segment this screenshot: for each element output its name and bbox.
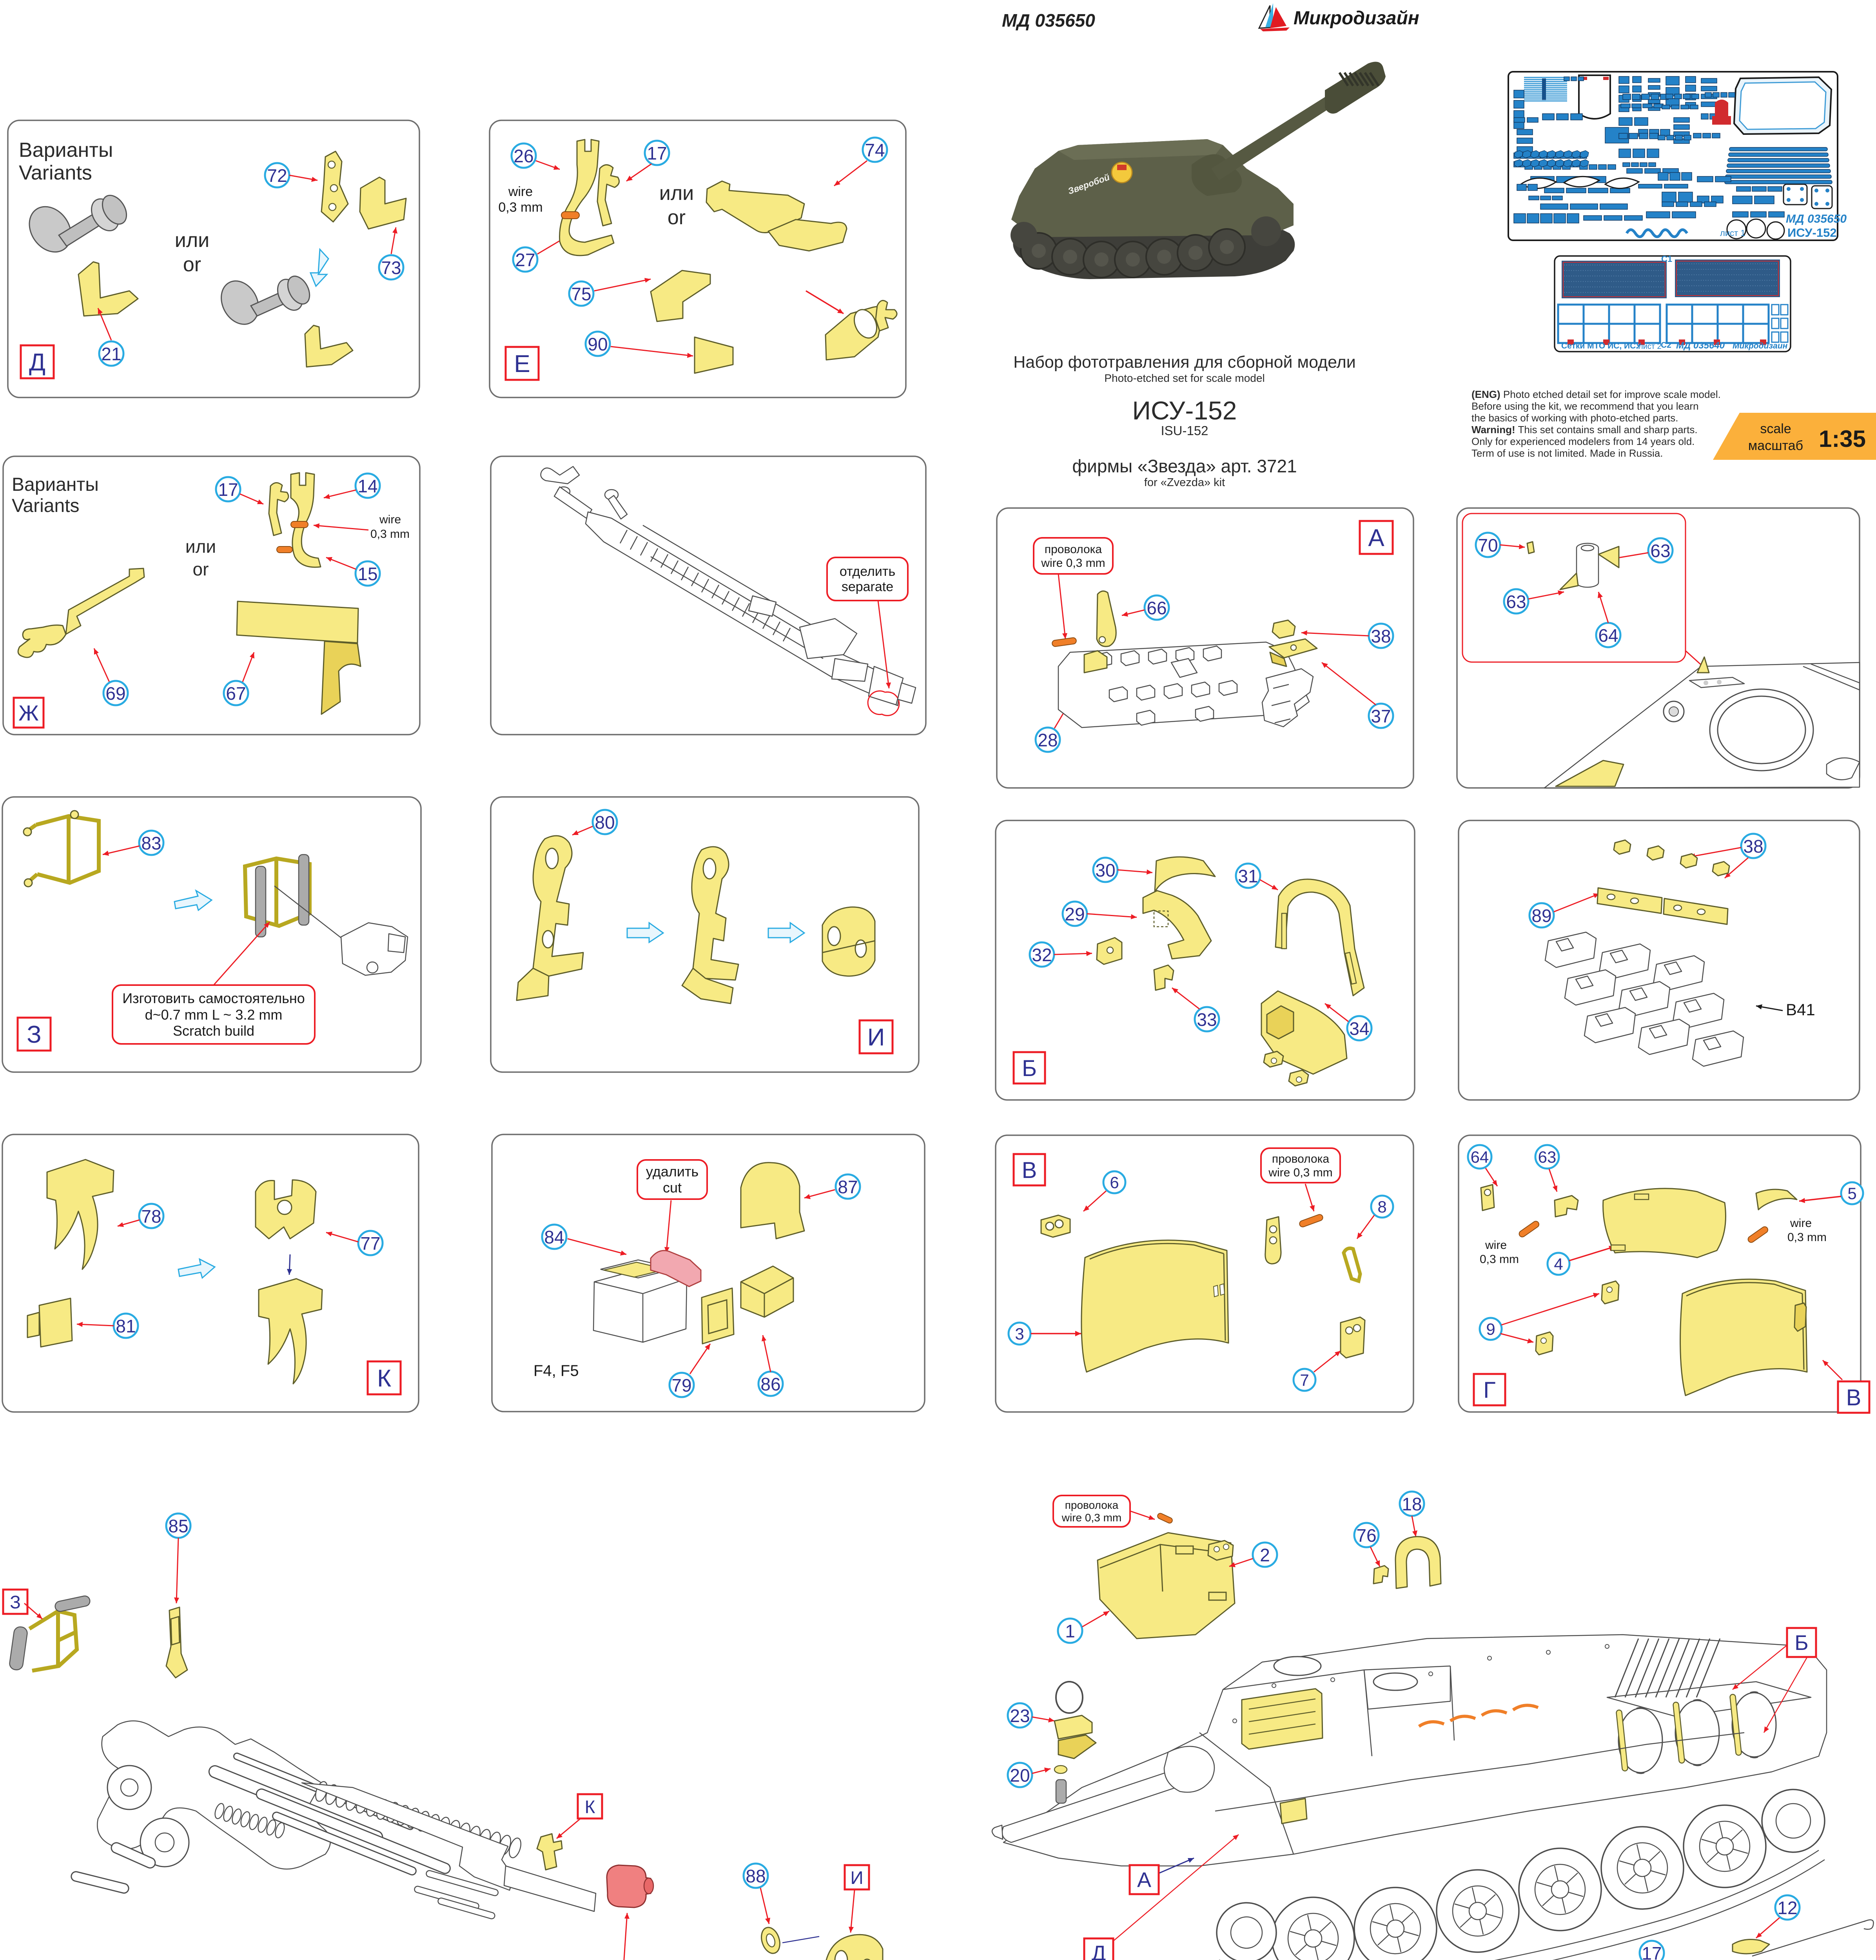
svg-text:64: 64	[1598, 625, 1618, 646]
svg-text:for «Zvezda» kit: for «Zvezda» kit	[1144, 476, 1225, 489]
svg-text:the basics of working with pho: the basics of working with photo-etched …	[1471, 412, 1678, 424]
svg-text:73: 73	[381, 258, 401, 278]
svg-text:С2: С2	[1661, 341, 1671, 350]
svg-text:63: 63	[1650, 541, 1670, 561]
svg-text:23: 23	[1010, 1706, 1030, 1726]
svg-text:72: 72	[267, 165, 287, 186]
svg-text:wire: wire	[508, 184, 533, 199]
svg-text:0,3 mm: 0,3 mm	[1480, 1253, 1519, 1266]
svg-text:Г: Г	[1483, 1377, 1495, 1403]
svg-text:или: или	[185, 536, 216, 557]
svg-text:масштаб: масштаб	[1748, 438, 1803, 453]
svg-text:F4, F5: F4, F5	[533, 1362, 579, 1379]
svg-text:cut: cut	[663, 1180, 682, 1196]
svg-text:64: 64	[1471, 1148, 1489, 1166]
svg-text:17: 17	[1642, 1943, 1662, 1960]
svg-text:1:35: 1:35	[1819, 426, 1866, 452]
svg-text:МД 035650: МД 035650	[1002, 10, 1095, 31]
svg-text:wire 0,3 mm: wire 0,3 mm	[1041, 557, 1105, 570]
svg-text:0,3 mm: 0,3 mm	[1787, 1231, 1827, 1244]
svg-text:(ENG) Photo etched detail set: (ENG) Photo etched detail set for improv…	[1471, 388, 1721, 400]
svg-text:лист 1: лист 1	[1720, 228, 1745, 238]
svg-text:Д: Д	[1092, 1942, 1106, 1960]
svg-text:7: 7	[1300, 1371, 1309, 1389]
svg-text:38: 38	[1743, 836, 1763, 857]
svg-text:К: К	[377, 1365, 391, 1392]
svg-text:фирмы «Звезда» арт. 3721: фирмы «Звезда» арт. 3721	[1072, 456, 1297, 476]
svg-text:Б: Б	[1022, 1056, 1037, 1081]
svg-text:or: or	[193, 559, 209, 579]
svg-text:wire: wire	[1485, 1239, 1507, 1252]
svg-text:ИСУ-152: ИСУ-152	[1787, 226, 1837, 240]
svg-text:3: 3	[1015, 1325, 1024, 1343]
svg-text:18: 18	[1402, 1494, 1422, 1514]
svg-text:А: А	[1137, 1868, 1151, 1892]
svg-text:Сетки МТО ИС, ИСУ: Сетки МТО ИС, ИСУ	[1561, 341, 1641, 350]
svg-text:78: 78	[141, 1206, 161, 1227]
svg-text:76: 76	[1356, 1525, 1376, 1546]
svg-text:ISU-152: ISU-152	[1161, 423, 1208, 438]
svg-text:30: 30	[1095, 860, 1115, 880]
svg-text:0,3 mm: 0,3 mm	[498, 200, 542, 215]
svg-text:4: 4	[1554, 1255, 1563, 1273]
svg-text:2: 2	[1260, 1545, 1270, 1565]
svg-text:Ж: Ж	[18, 701, 39, 725]
svg-text:38: 38	[1371, 626, 1391, 646]
svg-text:Микродизайн: Микродизайн	[1294, 8, 1419, 29]
svg-text:или: или	[175, 229, 209, 252]
svg-text:отделить: отделить	[840, 564, 895, 579]
svg-text:14: 14	[357, 476, 377, 496]
svg-text:80: 80	[595, 812, 615, 833]
svg-text:B41: B41	[1786, 1000, 1815, 1019]
svg-text:Варианты: Варианты	[12, 474, 99, 495]
svg-text:d~0.7 mm L ~ 3.2 mm: d~0.7 mm L ~ 3.2 mm	[145, 1007, 283, 1023]
svg-text:К: К	[585, 1797, 595, 1817]
svg-text:63: 63	[1506, 592, 1526, 612]
svg-text:separate: separate	[842, 579, 893, 594]
svg-text:Б: Б	[1794, 1631, 1808, 1655]
svg-text:Варианты: Варианты	[19, 139, 113, 162]
svg-text:wire: wire	[379, 513, 401, 526]
svg-text:wire 0,3 mm: wire 0,3 mm	[1061, 1512, 1121, 1524]
svg-text:87: 87	[838, 1177, 858, 1197]
svg-text:МД 035640: МД 035640	[1676, 340, 1725, 351]
svg-text:86: 86	[760, 1374, 780, 1394]
svg-text:И: И	[850, 1867, 863, 1888]
svg-text:26: 26	[513, 146, 533, 166]
svg-text:удалить: удалить	[646, 1163, 699, 1180]
svg-text:C1: C1	[1661, 254, 1672, 264]
svg-text:МД 035650: МД 035650	[1786, 212, 1847, 225]
svg-text:проволока: проволока	[1272, 1152, 1330, 1165]
svg-text:или: или	[659, 182, 694, 205]
svg-text:12: 12	[1777, 1898, 1797, 1918]
svg-text:З: З	[10, 1592, 21, 1612]
svg-text:75: 75	[571, 284, 591, 304]
svg-text:Набор фототравления для сборно: Набор фототравления для сборной модели	[1013, 353, 1356, 372]
svg-text:32: 32	[1032, 945, 1052, 965]
svg-text:85: 85	[168, 1516, 188, 1536]
svg-text:31: 31	[1238, 866, 1258, 886]
svg-text:79: 79	[671, 1375, 691, 1396]
svg-text:77: 77	[360, 1233, 380, 1254]
svg-text:20: 20	[1010, 1765, 1030, 1786]
svg-text:И: И	[867, 1024, 885, 1051]
svg-text:Изготовить самостоятельно: Изготовить самостоятельно	[122, 990, 305, 1006]
svg-text:81: 81	[116, 1316, 136, 1336]
svg-text:З: З	[27, 1021, 41, 1048]
svg-text:89: 89	[1531, 906, 1551, 926]
svg-text:or: or	[668, 206, 686, 229]
svg-text:33: 33	[1197, 1009, 1217, 1030]
svg-text:Scratch build: Scratch build	[173, 1023, 254, 1039]
svg-text:90: 90	[588, 334, 608, 354]
svg-text:В: В	[1022, 1158, 1037, 1183]
svg-text:74: 74	[865, 140, 885, 160]
svg-text:88: 88	[746, 1866, 766, 1886]
svg-text:проволока: проволока	[1045, 543, 1102, 556]
svg-text:Warning! This set contains sma: Warning! This set contains small and sha…	[1471, 424, 1698, 436]
svg-text:6: 6	[1110, 1173, 1119, 1192]
svg-text:ИСУ-152: ИСУ-152	[1132, 396, 1237, 425]
svg-text:Before using the kit, we recom: Before using the kit, we recommend that …	[1471, 400, 1699, 412]
svg-text:лист 2: лист 2	[1638, 342, 1662, 351]
svg-text:0,3 mm: 0,3 mm	[370, 528, 410, 541]
svg-text:Д: Д	[29, 349, 45, 376]
svg-text:63: 63	[1538, 1148, 1557, 1166]
svg-text:67: 67	[226, 683, 246, 704]
svg-text:Микродизаин: Микродизаин	[1733, 341, 1788, 350]
svg-text:Only for experienced modelers: Only for experienced modelers from 14 ye…	[1471, 436, 1695, 447]
svg-text:А: А	[1368, 524, 1384, 552]
svg-text:проволока: проволока	[1065, 1499, 1119, 1511]
svg-text:Е: Е	[514, 350, 530, 377]
svg-text:84: 84	[544, 1227, 564, 1247]
svg-text:21: 21	[101, 344, 121, 364]
svg-text:34: 34	[1349, 1018, 1369, 1039]
svg-text:or: or	[183, 253, 201, 276]
svg-text:69: 69	[105, 683, 125, 704]
svg-text:66: 66	[1147, 598, 1167, 618]
svg-text:27: 27	[515, 250, 535, 270]
svg-text:wire 0,3 mm: wire 0,3 mm	[1268, 1166, 1332, 1179]
svg-text:5: 5	[1847, 1184, 1856, 1203]
svg-text:Variants: Variants	[12, 495, 80, 516]
svg-text:17: 17	[647, 143, 667, 163]
svg-text:Photo-etched set for scale mod: Photo-etched set for scale model	[1104, 372, 1265, 384]
svg-text:83: 83	[141, 833, 161, 853]
svg-text:8: 8	[1377, 1198, 1386, 1216]
svg-text:15: 15	[357, 564, 377, 584]
svg-text:Term of use is not limited. Ma: Term of use is not limited. Made in Russ…	[1471, 447, 1663, 459]
svg-text:scale: scale	[1760, 421, 1791, 436]
svg-text:37: 37	[1371, 706, 1391, 726]
svg-text:9: 9	[1486, 1320, 1495, 1338]
svg-text:wire: wire	[1790, 1217, 1812, 1230]
svg-text:70: 70	[1478, 535, 1498, 555]
svg-text:Variants: Variants	[19, 162, 92, 184]
svg-text:28: 28	[1038, 730, 1058, 750]
svg-text:17: 17	[218, 479, 238, 500]
svg-text:В: В	[1846, 1385, 1861, 1410]
svg-text:1: 1	[1065, 1621, 1075, 1641]
svg-text:29: 29	[1065, 904, 1085, 924]
